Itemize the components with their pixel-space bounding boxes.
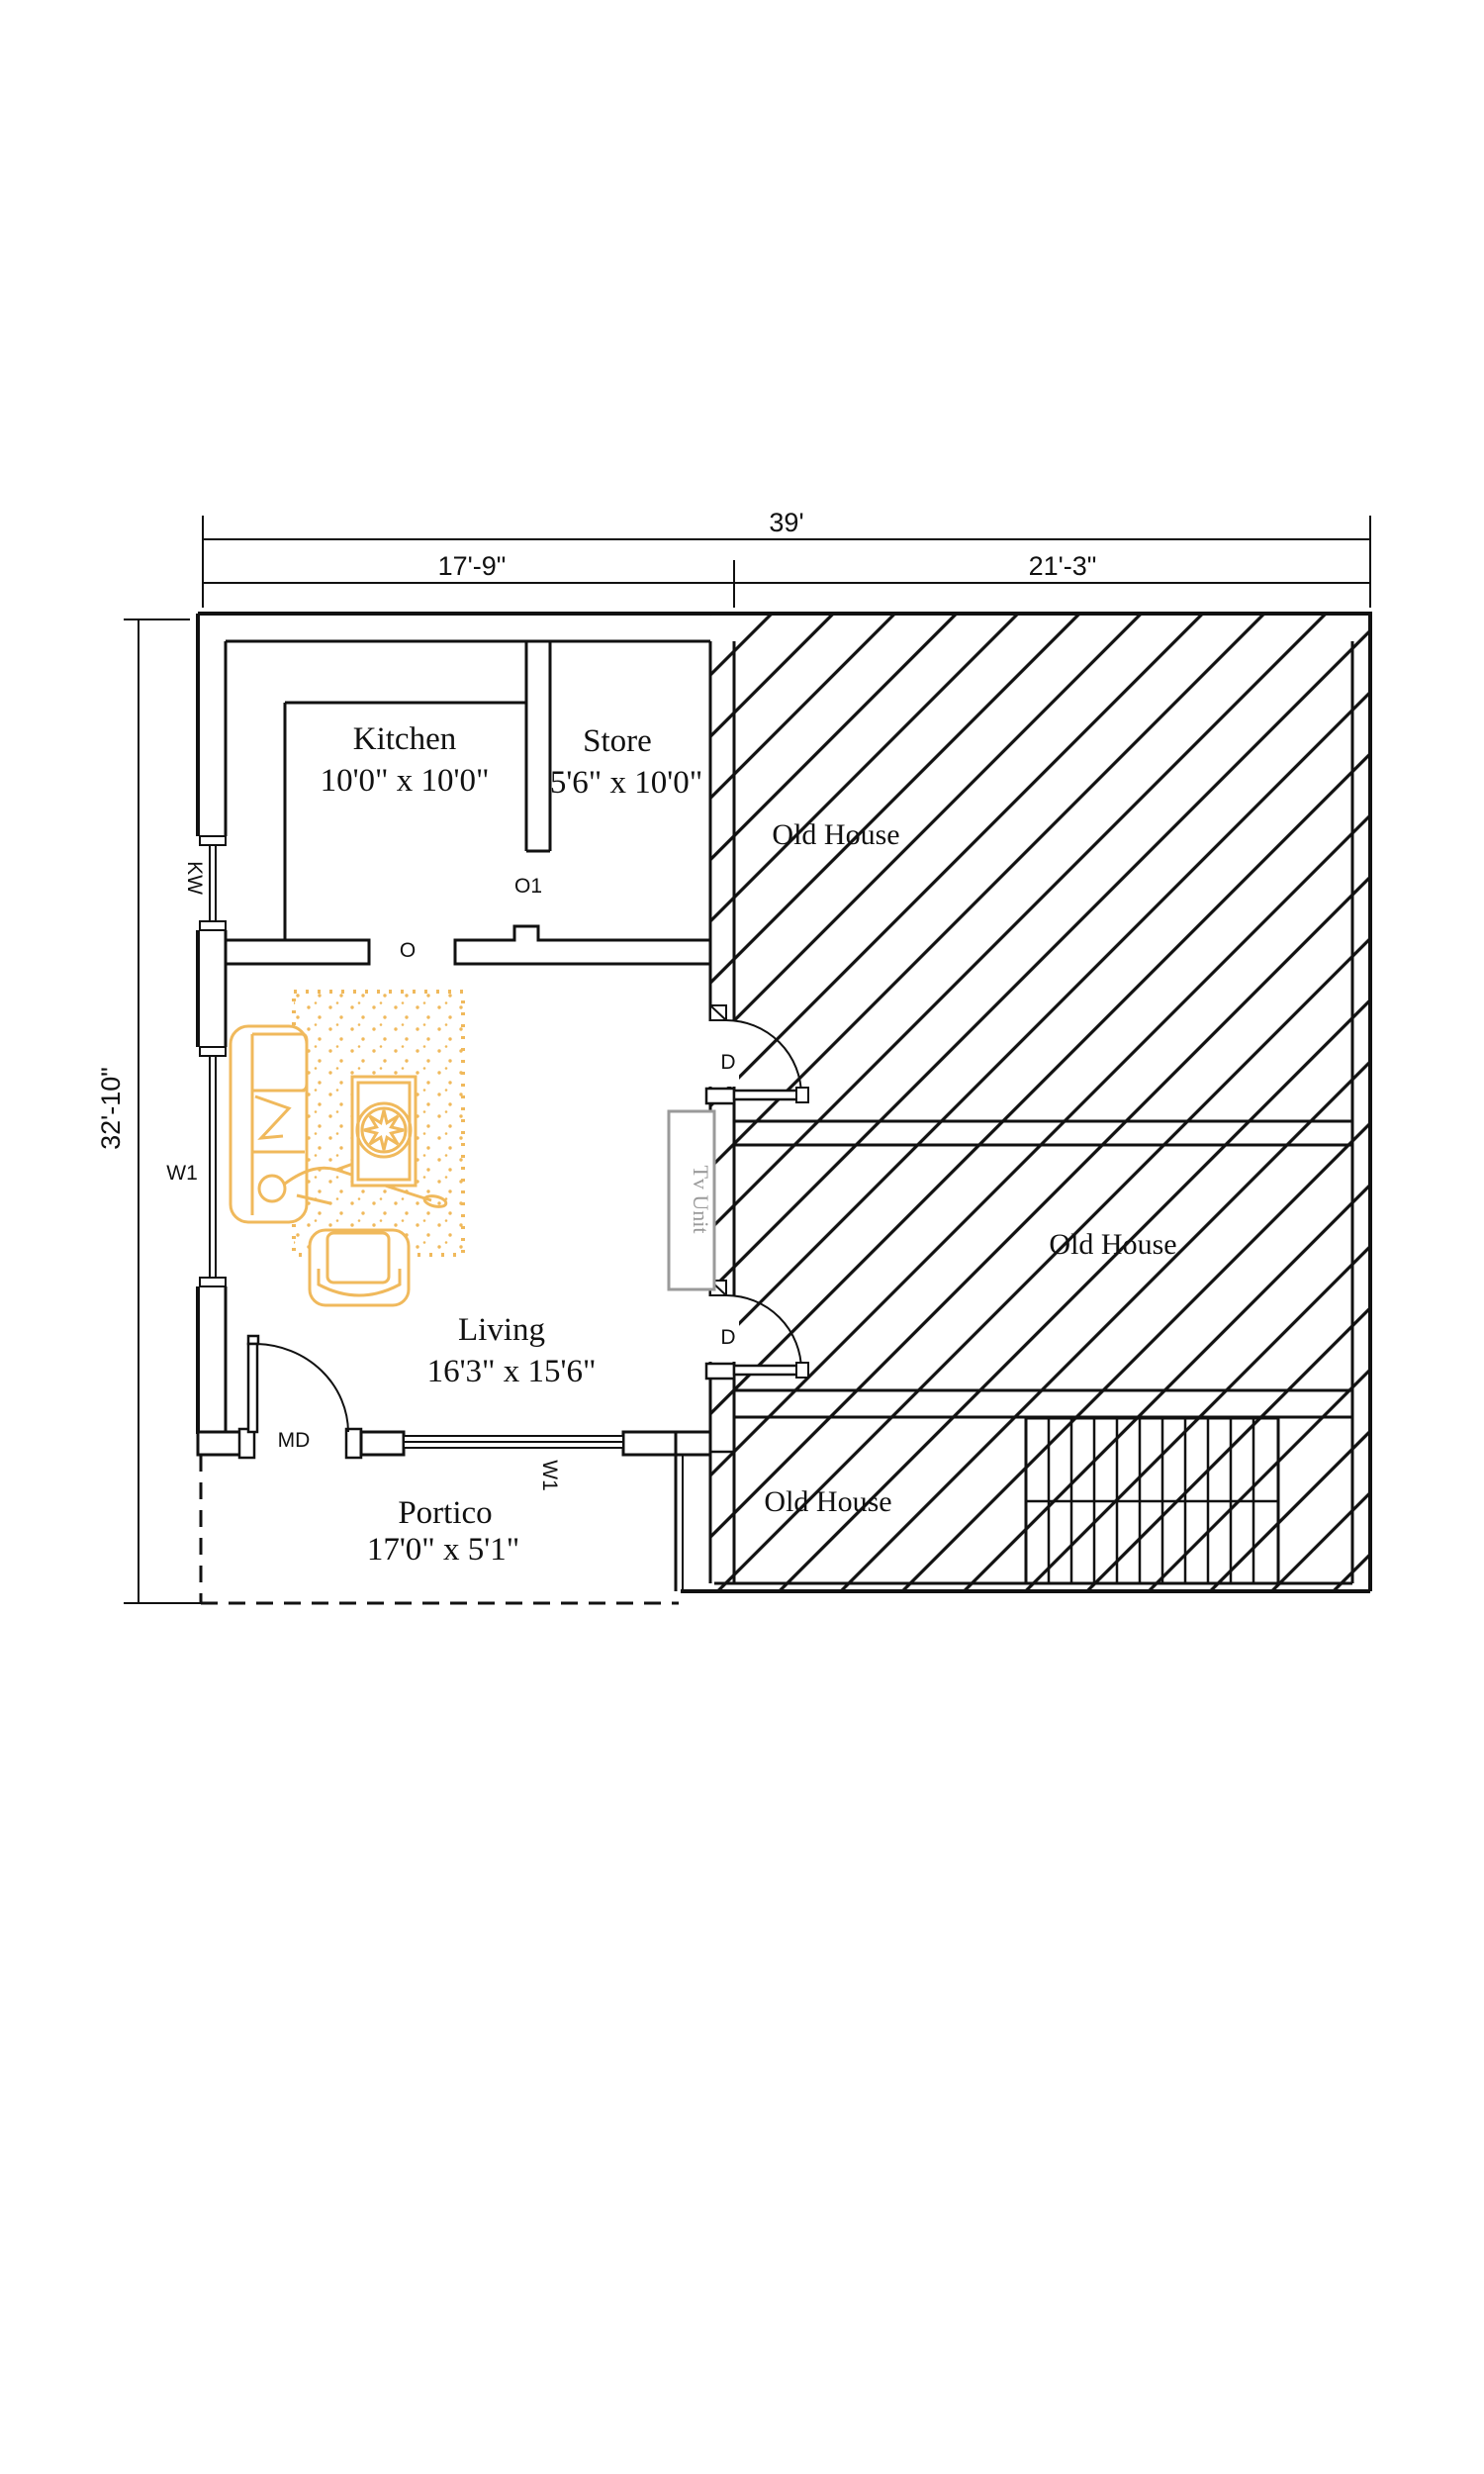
store-label: Store (583, 723, 652, 759)
portico-label: Portico (398, 1495, 492, 1531)
kitchen-store-walls (226, 641, 710, 964)
door-top-leaf (734, 1091, 803, 1099)
window-w1-left-label: W1 (166, 1162, 198, 1185)
door-frame-left (239, 1429, 254, 1458)
portico-size: 17'0" x 5'1" (367, 1532, 519, 1568)
dim-right-width: 21'-3" (1029, 551, 1097, 581)
main-door-label: MD (278, 1429, 311, 1452)
store-size: 5'6" x 10'0" (550, 765, 702, 801)
tv-unit: Tv Unit (669, 1111, 714, 1289)
living-furniture (231, 992, 463, 1305)
door-top-label: D (720, 1051, 735, 1074)
window-w1-bottom-label: W1 (538, 1460, 561, 1491)
south-wall (198, 1429, 710, 1458)
floor-plan-page: Tv Unit (0, 0, 1484, 2474)
window-w1-left (195, 1047, 229, 1286)
opening-1-label: O1 (514, 875, 542, 898)
dim-total-width: 39' (769, 508, 803, 537)
dim-height: 32'-10" (96, 1067, 126, 1150)
main-door-swing-arc (257, 1344, 348, 1432)
opening-label: O (400, 939, 416, 962)
tv-unit-label: Tv Unit (689, 1165, 713, 1233)
door-bottom-label: D (720, 1326, 735, 1349)
main-door (248, 1336, 348, 1432)
door-bottom-frame (706, 1364, 734, 1379)
window-frame-left (361, 1432, 404, 1455)
door-top-frame (706, 1089, 734, 1103)
window-frame-right (623, 1432, 676, 1455)
wall-kitchen-south-right (455, 926, 710, 964)
dim-left-width: 17'-9" (438, 551, 507, 581)
old-house-top-label: Old House (772, 818, 899, 851)
sofa (231, 1026, 307, 1222)
old-house-middle-label: Old House (1049, 1228, 1176, 1261)
living-size: 16'3" x 15'6" (427, 1354, 597, 1389)
floor-plan-drawing: Tv Unit (0, 0, 1484, 2474)
old-house-section (710, 614, 1372, 1591)
living-label: Living (458, 1312, 545, 1348)
kitchen-window-label: KW (183, 861, 206, 895)
old-house-hatch (710, 614, 1372, 1591)
wall-kitchen-south-left (226, 940, 369, 964)
kitchen-size: 10'0" x 10'0" (321, 763, 490, 799)
armchair (310, 1230, 409, 1305)
main-door-leaf (248, 1344, 257, 1432)
door-bottom-leaf (734, 1366, 803, 1375)
old-house-bottom-label: Old House (764, 1485, 891, 1518)
door-frame-right (346, 1429, 361, 1458)
kitchen-label: Kitchen (353, 721, 456, 757)
coffee-table (352, 1077, 416, 1186)
